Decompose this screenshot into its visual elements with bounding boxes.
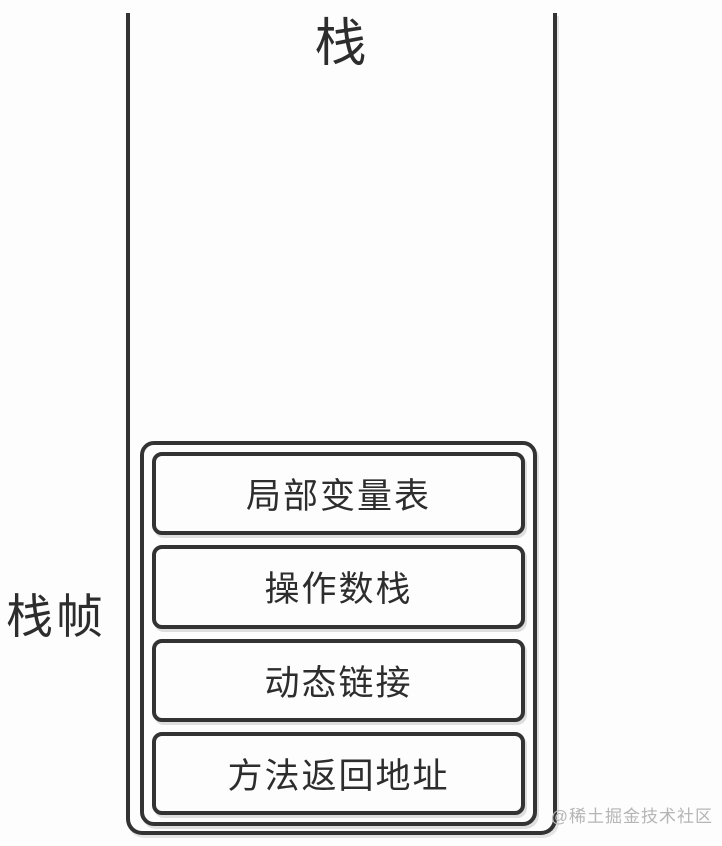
stack-frame-label: 栈帧 (6, 590, 106, 644)
watermark-text: @稀土掘金技术社区 (551, 802, 713, 827)
stack-title: 栈 (126, 16, 557, 73)
jvm-stack-diagram: 栈 栈帧 局部变量表 操作数栈 动态链接 方法返回地址 @稀土掘金技术社区 (0, 0, 722, 846)
frame-item-operand-stack: 操作数栈 (152, 545, 525, 628)
frame-item-dynamic-linking: 动态链接 (152, 639, 525, 722)
frame-item-local-variable-table: 局部变量表 (152, 452, 525, 535)
frame-item-method-return-address: 方法返回地址 (152, 732, 525, 815)
stack-frame-box: 局部变量表 操作数栈 动态链接 方法返回地址 (140, 441, 537, 826)
